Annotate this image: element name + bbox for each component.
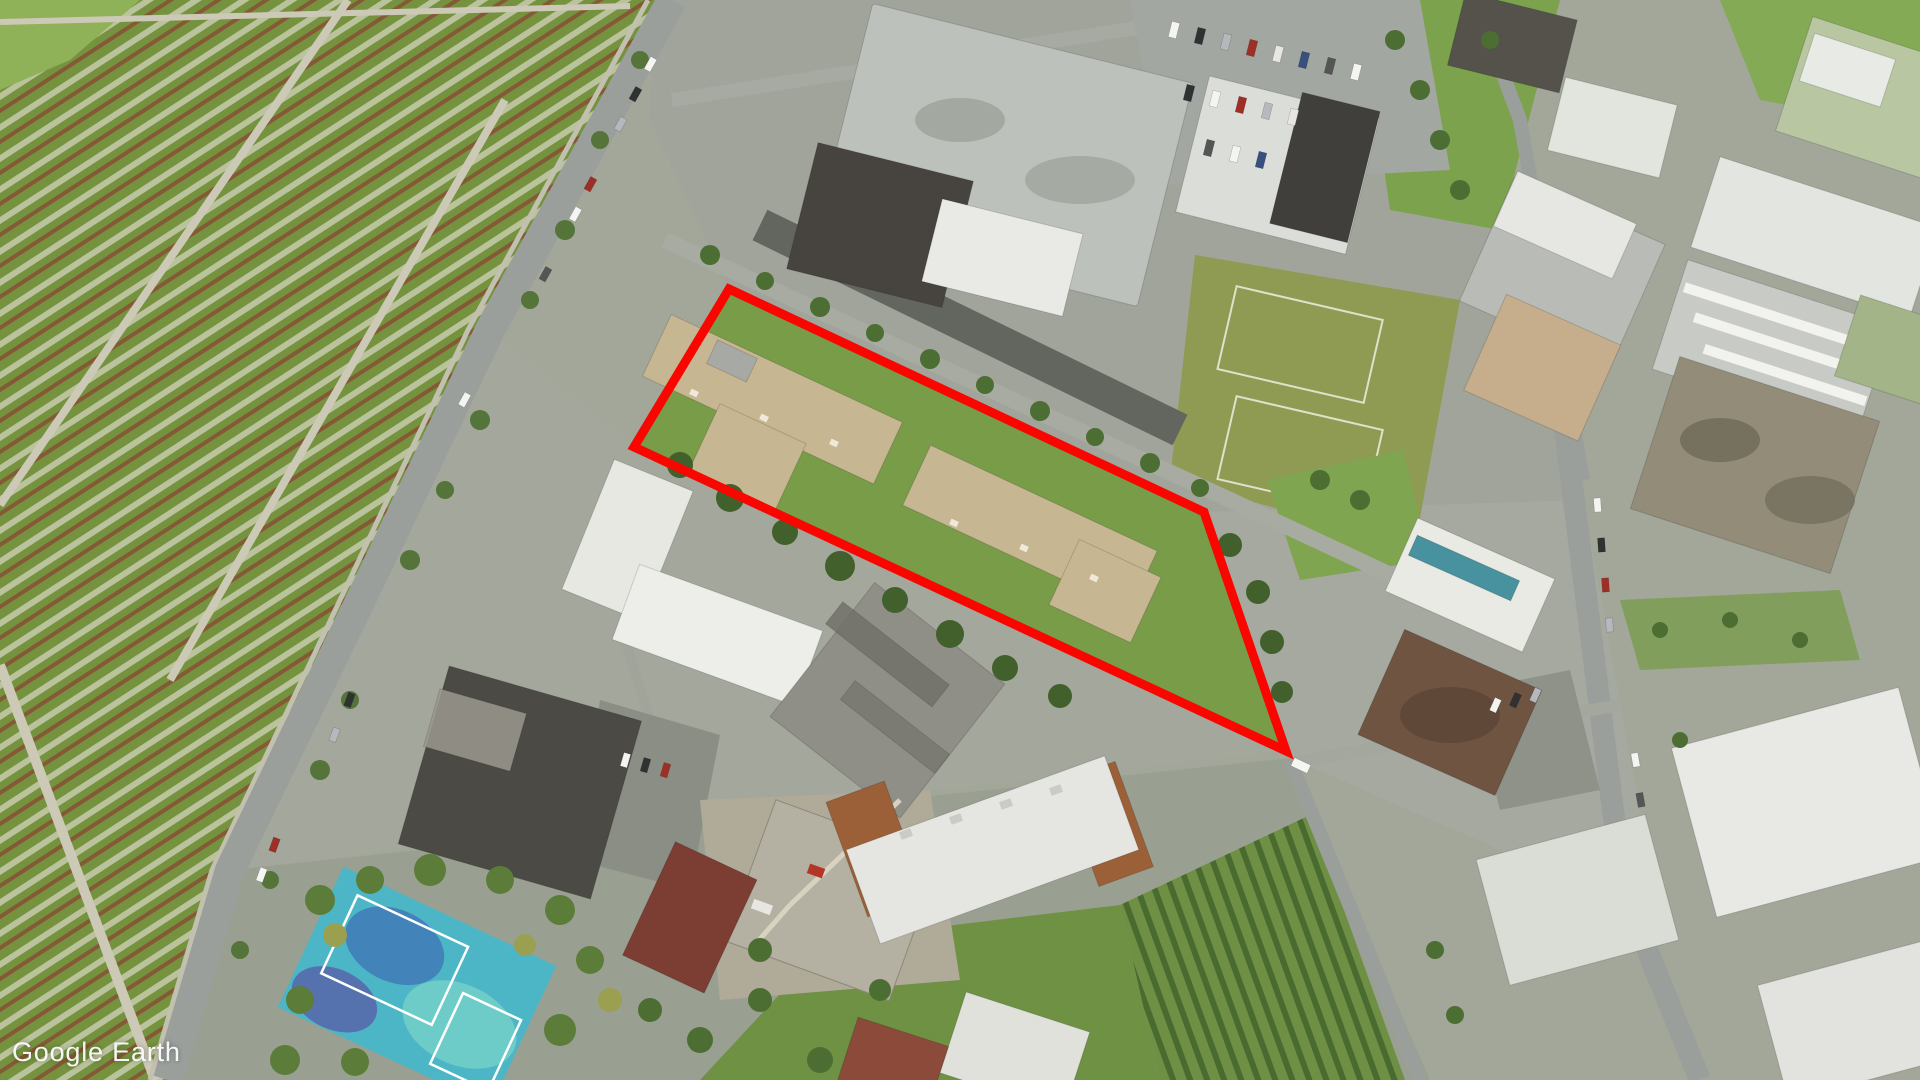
- google-earth-viewport[interactable]: Google Earth: [0, 0, 1920, 1080]
- aerial-imagery-canvas[interactable]: [0, 0, 1920, 1080]
